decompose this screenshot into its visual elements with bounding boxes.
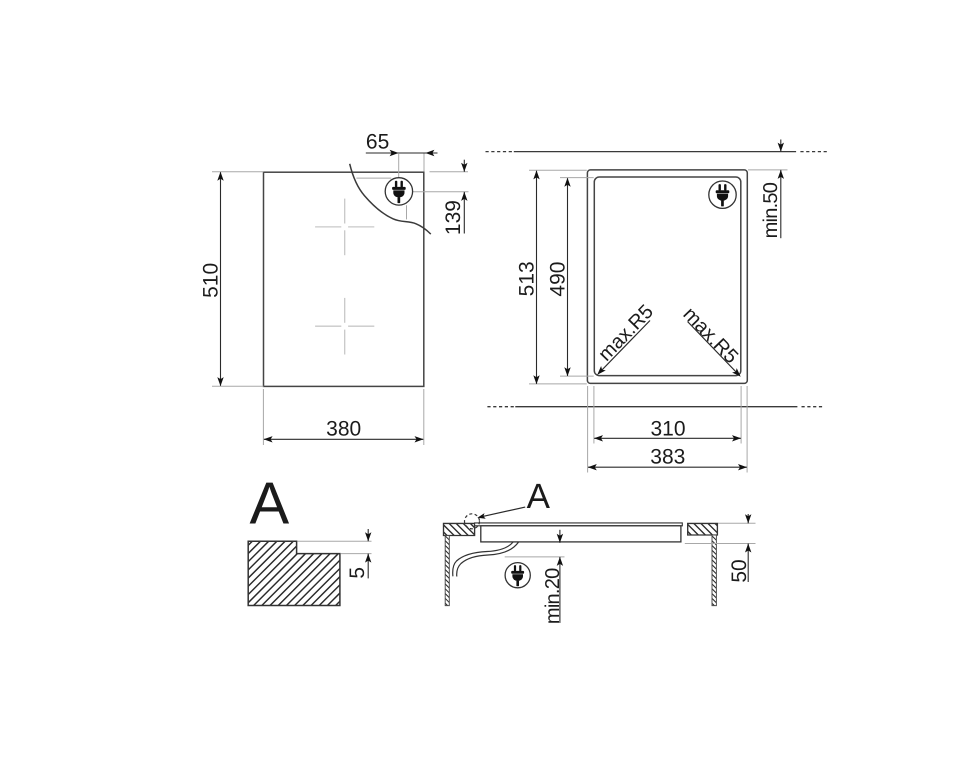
svg-text:310: 310	[650, 418, 685, 441]
svg-text:50: 50	[728, 559, 751, 582]
svg-text:min.20: min.20	[542, 568, 564, 624]
svg-text:65: 65	[366, 131, 389, 154]
svg-text:380: 380	[326, 418, 361, 441]
svg-text:513: 513	[515, 261, 538, 296]
svg-text:A: A	[527, 477, 551, 516]
svg-text:A: A	[250, 469, 290, 536]
svg-text:383: 383	[650, 446, 685, 469]
svg-text:min.50: min.50	[760, 182, 782, 238]
svg-text:139: 139	[442, 200, 465, 235]
svg-text:510: 510	[200, 263, 223, 298]
svg-text:490: 490	[546, 262, 569, 297]
svg-text:5: 5	[346, 567, 369, 579]
